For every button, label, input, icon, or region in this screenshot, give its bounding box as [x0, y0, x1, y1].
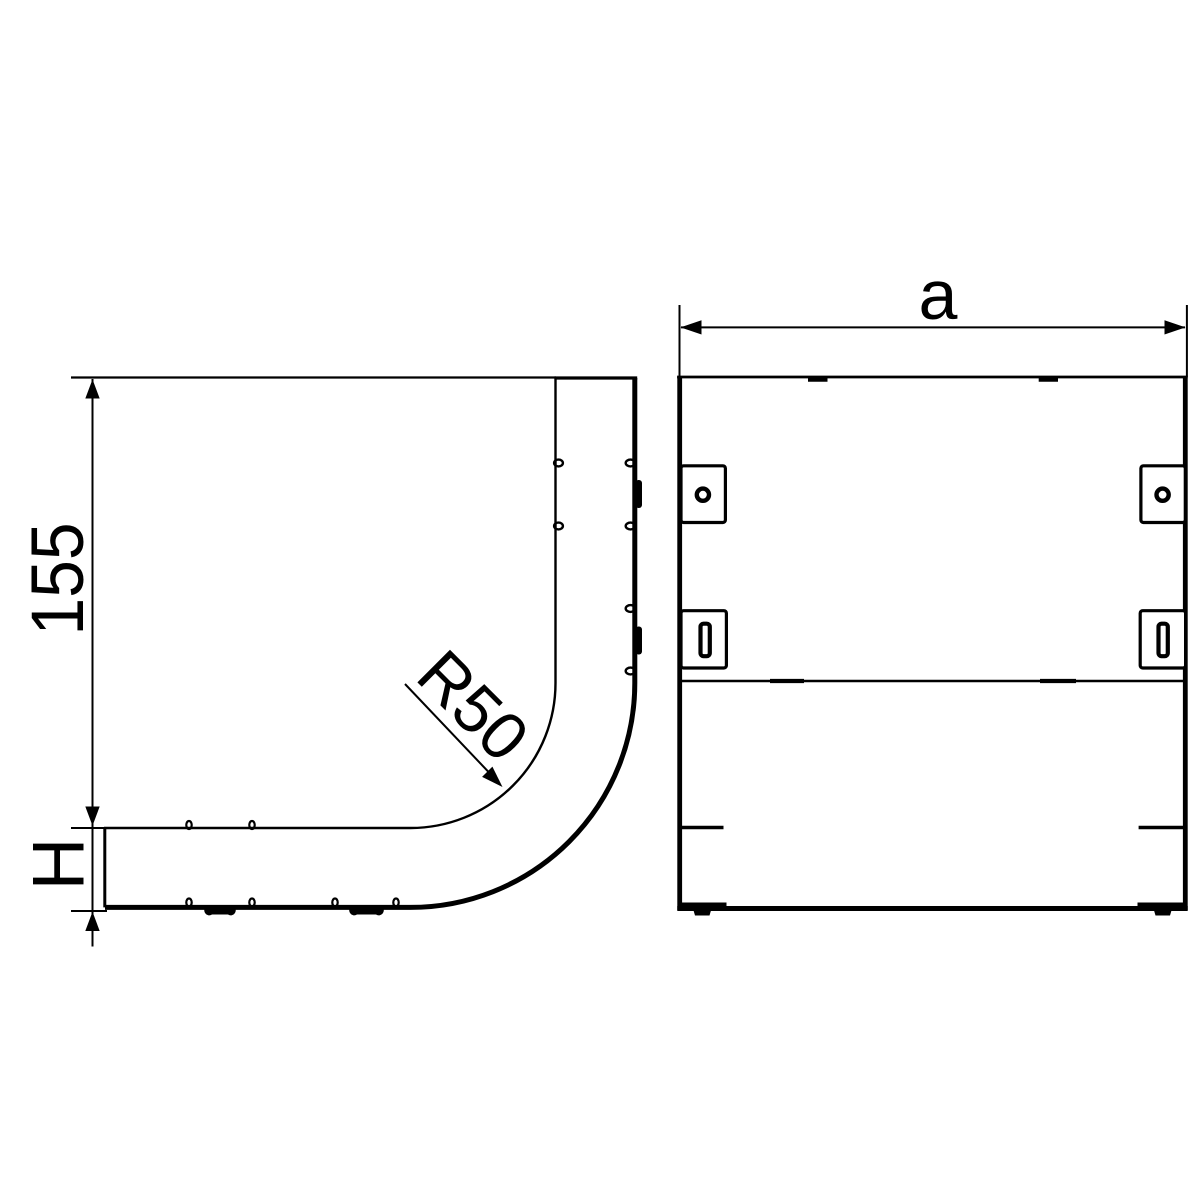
- svg-text:H: H: [19, 838, 100, 891]
- svg-text:R50: R50: [403, 636, 543, 776]
- svg-text:155: 155: [16, 523, 99, 636]
- svg-text:a: a: [919, 256, 958, 334]
